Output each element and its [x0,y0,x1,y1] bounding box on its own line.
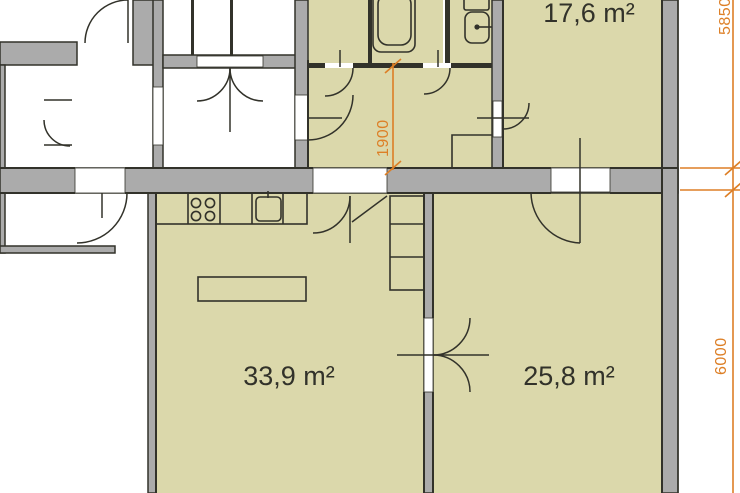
label-room-258: 25,8 m² [523,361,615,391]
dim-label-6000: 6000 [713,337,730,375]
opening-hall-room176 [493,101,502,137]
wall-hall-room176 [492,0,503,170]
opening-hall-livingroom [313,168,387,193]
wall-vestibule-div2 [230,0,233,58]
dim-label-5850: 5850 [717,0,734,35]
wall-right-outer [662,0,678,493]
floor-plan: 5850 6000 1900 17,6 m² 33,9 m² 25,8 m² [0,0,740,493]
wall-neighbor-vertical [133,0,155,65]
opening-neighbor-vestibule [153,87,163,145]
door-neighbor-lower [77,193,127,243]
wall-stub-3 [451,63,492,68]
opening-vestibule [197,56,263,67]
door-neighbor-topleft [85,0,128,43]
room-storage [308,0,368,63]
opening-neighbor-room [75,168,125,193]
label-room-339: 33,9 m² [243,361,335,391]
room-bathroom [372,0,443,63]
wall-stub-1 [308,63,325,68]
room-bottom-right [433,193,662,493]
double-door-vestibule [197,68,263,132]
label-room-176: 17,6 m² [543,0,635,28]
wall-bath-partition [368,0,372,63]
wall-vestibule-div1 [191,0,194,55]
wall-neighbor-bottom [0,246,115,253]
wall-wc-partition [445,0,450,63]
wall-left-outer [0,65,5,253]
wall-neighbor-top [0,42,77,65]
floor-plan-canvas: 5850 6000 1900 17,6 m² 33,9 m² 25,8 m² [0,0,740,493]
door-neighbor-left [44,100,72,146]
wall-hallway-left [295,0,308,168]
opening-flat-entrance [295,95,308,140]
wall-stub-2 [353,63,423,68]
wall-lower-left [148,193,156,493]
rooms [156,0,662,493]
dim-label-1900: 1900 [375,119,392,157]
room-bottom-left [156,193,424,493]
